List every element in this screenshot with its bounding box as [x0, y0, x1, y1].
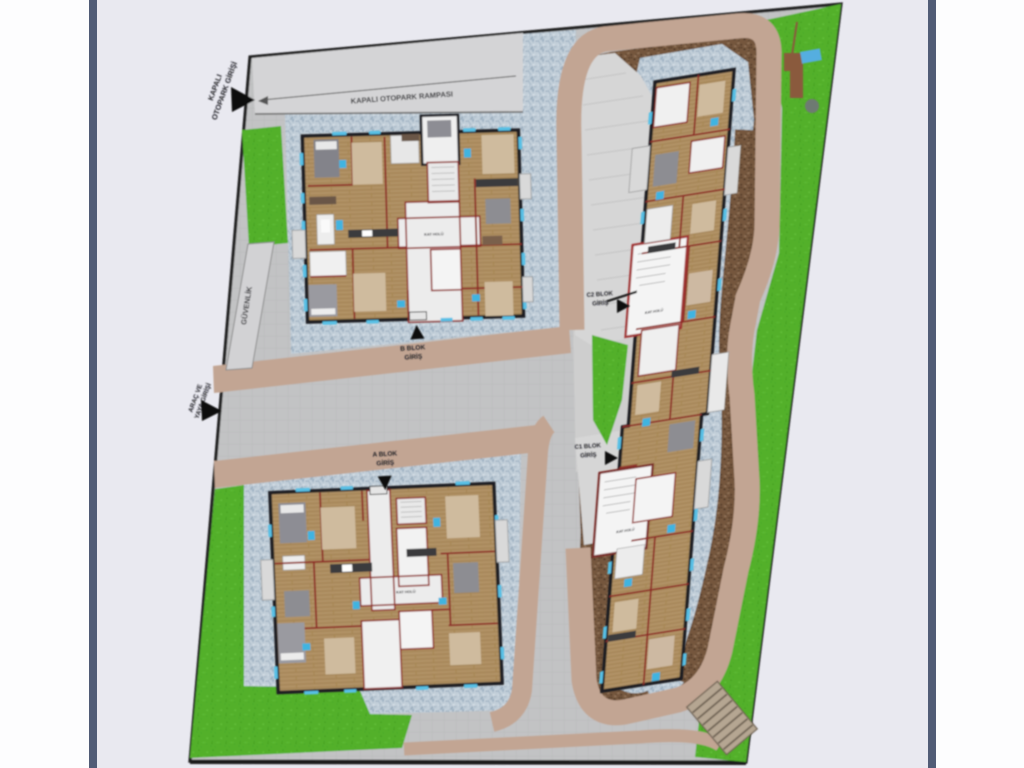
svg-text:GİRİŞ: GİRİŞ — [404, 352, 423, 361]
svg-text:A BLOK: A BLOK — [372, 450, 397, 458]
svg-text:GİRİŞ: GİRİŞ — [592, 299, 609, 307]
svg-text:KAT HOLÜ: KAT HOLÜ — [424, 231, 444, 237]
svg-text:KAT HOLÜ: KAT HOLÜ — [396, 589, 416, 595]
svg-text:GİRİŞ: GİRİŞ — [376, 459, 395, 468]
svg-text:GİRİŞ: GİRİŞ — [580, 451, 597, 459]
